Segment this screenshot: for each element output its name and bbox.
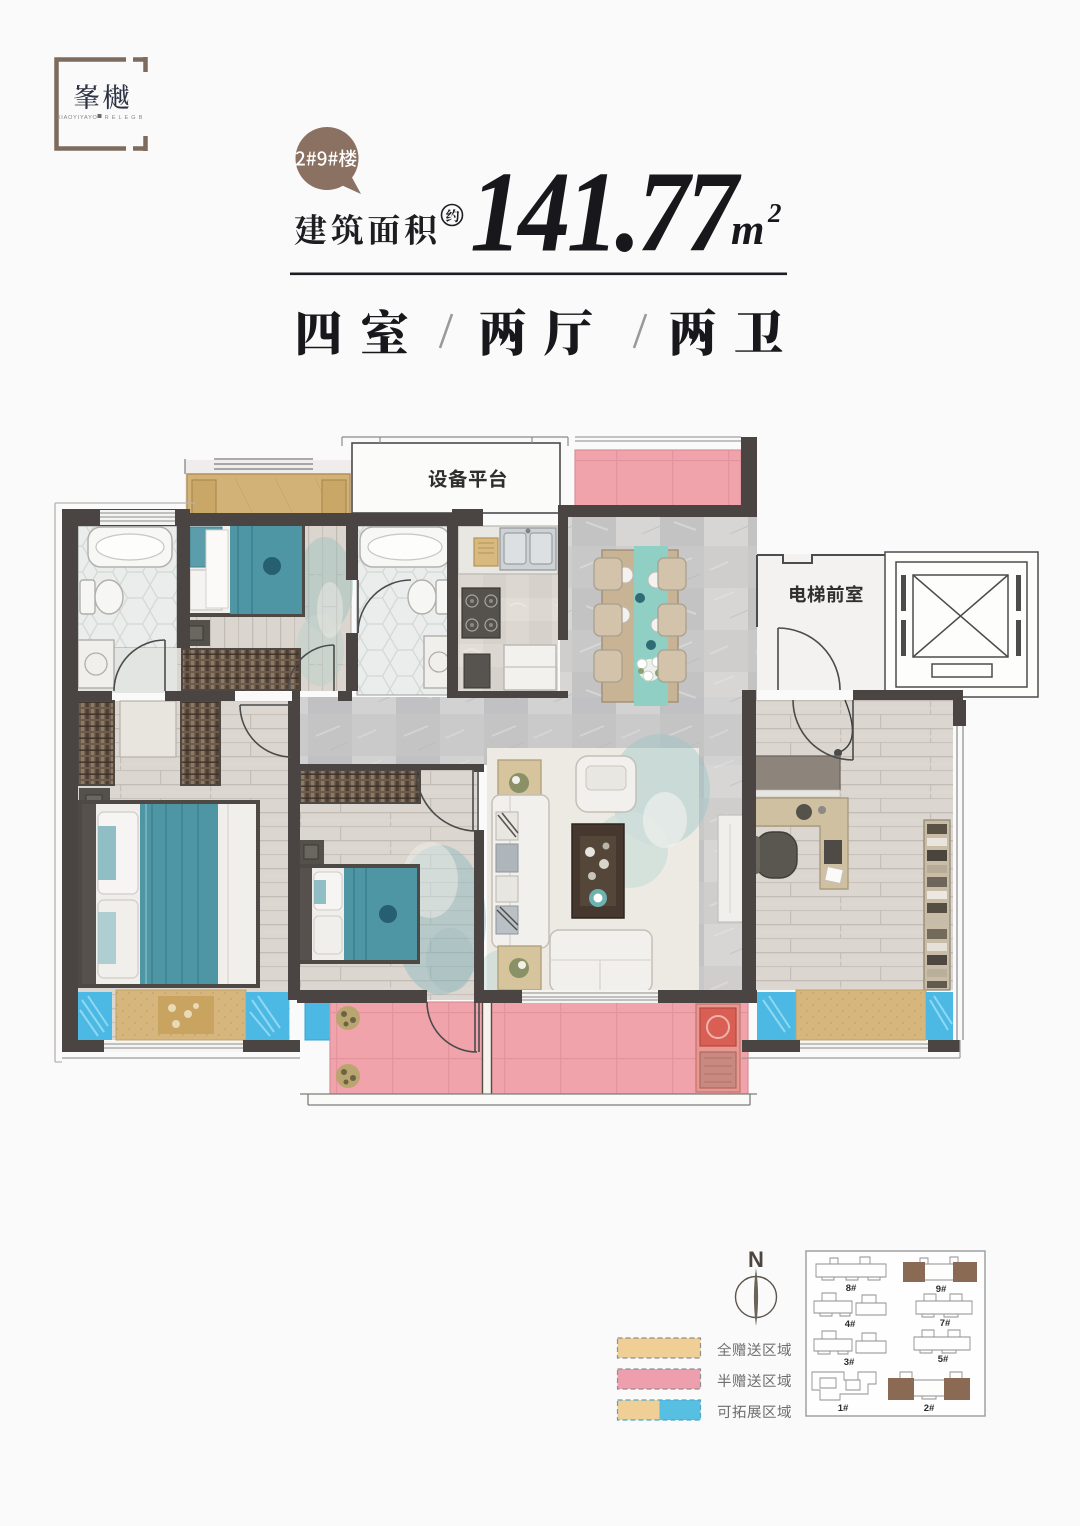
svg-text:141.77: 141.77	[470, 148, 742, 276]
svg-text:2#: 2#	[924, 1403, 935, 1414]
svg-text:m: m	[731, 207, 764, 254]
svg-text:1#: 1#	[838, 1403, 849, 1414]
svg-text:5#: 5#	[938, 1354, 949, 1365]
svg-text:3#: 3#	[844, 1357, 855, 1368]
svg-text:7#: 7#	[940, 1318, 951, 1329]
svg-text:8#: 8#	[846, 1283, 857, 1294]
svg-text:9#: 9#	[936, 1284, 947, 1295]
svg-text:4#: 4#	[845, 1319, 856, 1330]
svg-text:2: 2	[767, 198, 782, 228]
